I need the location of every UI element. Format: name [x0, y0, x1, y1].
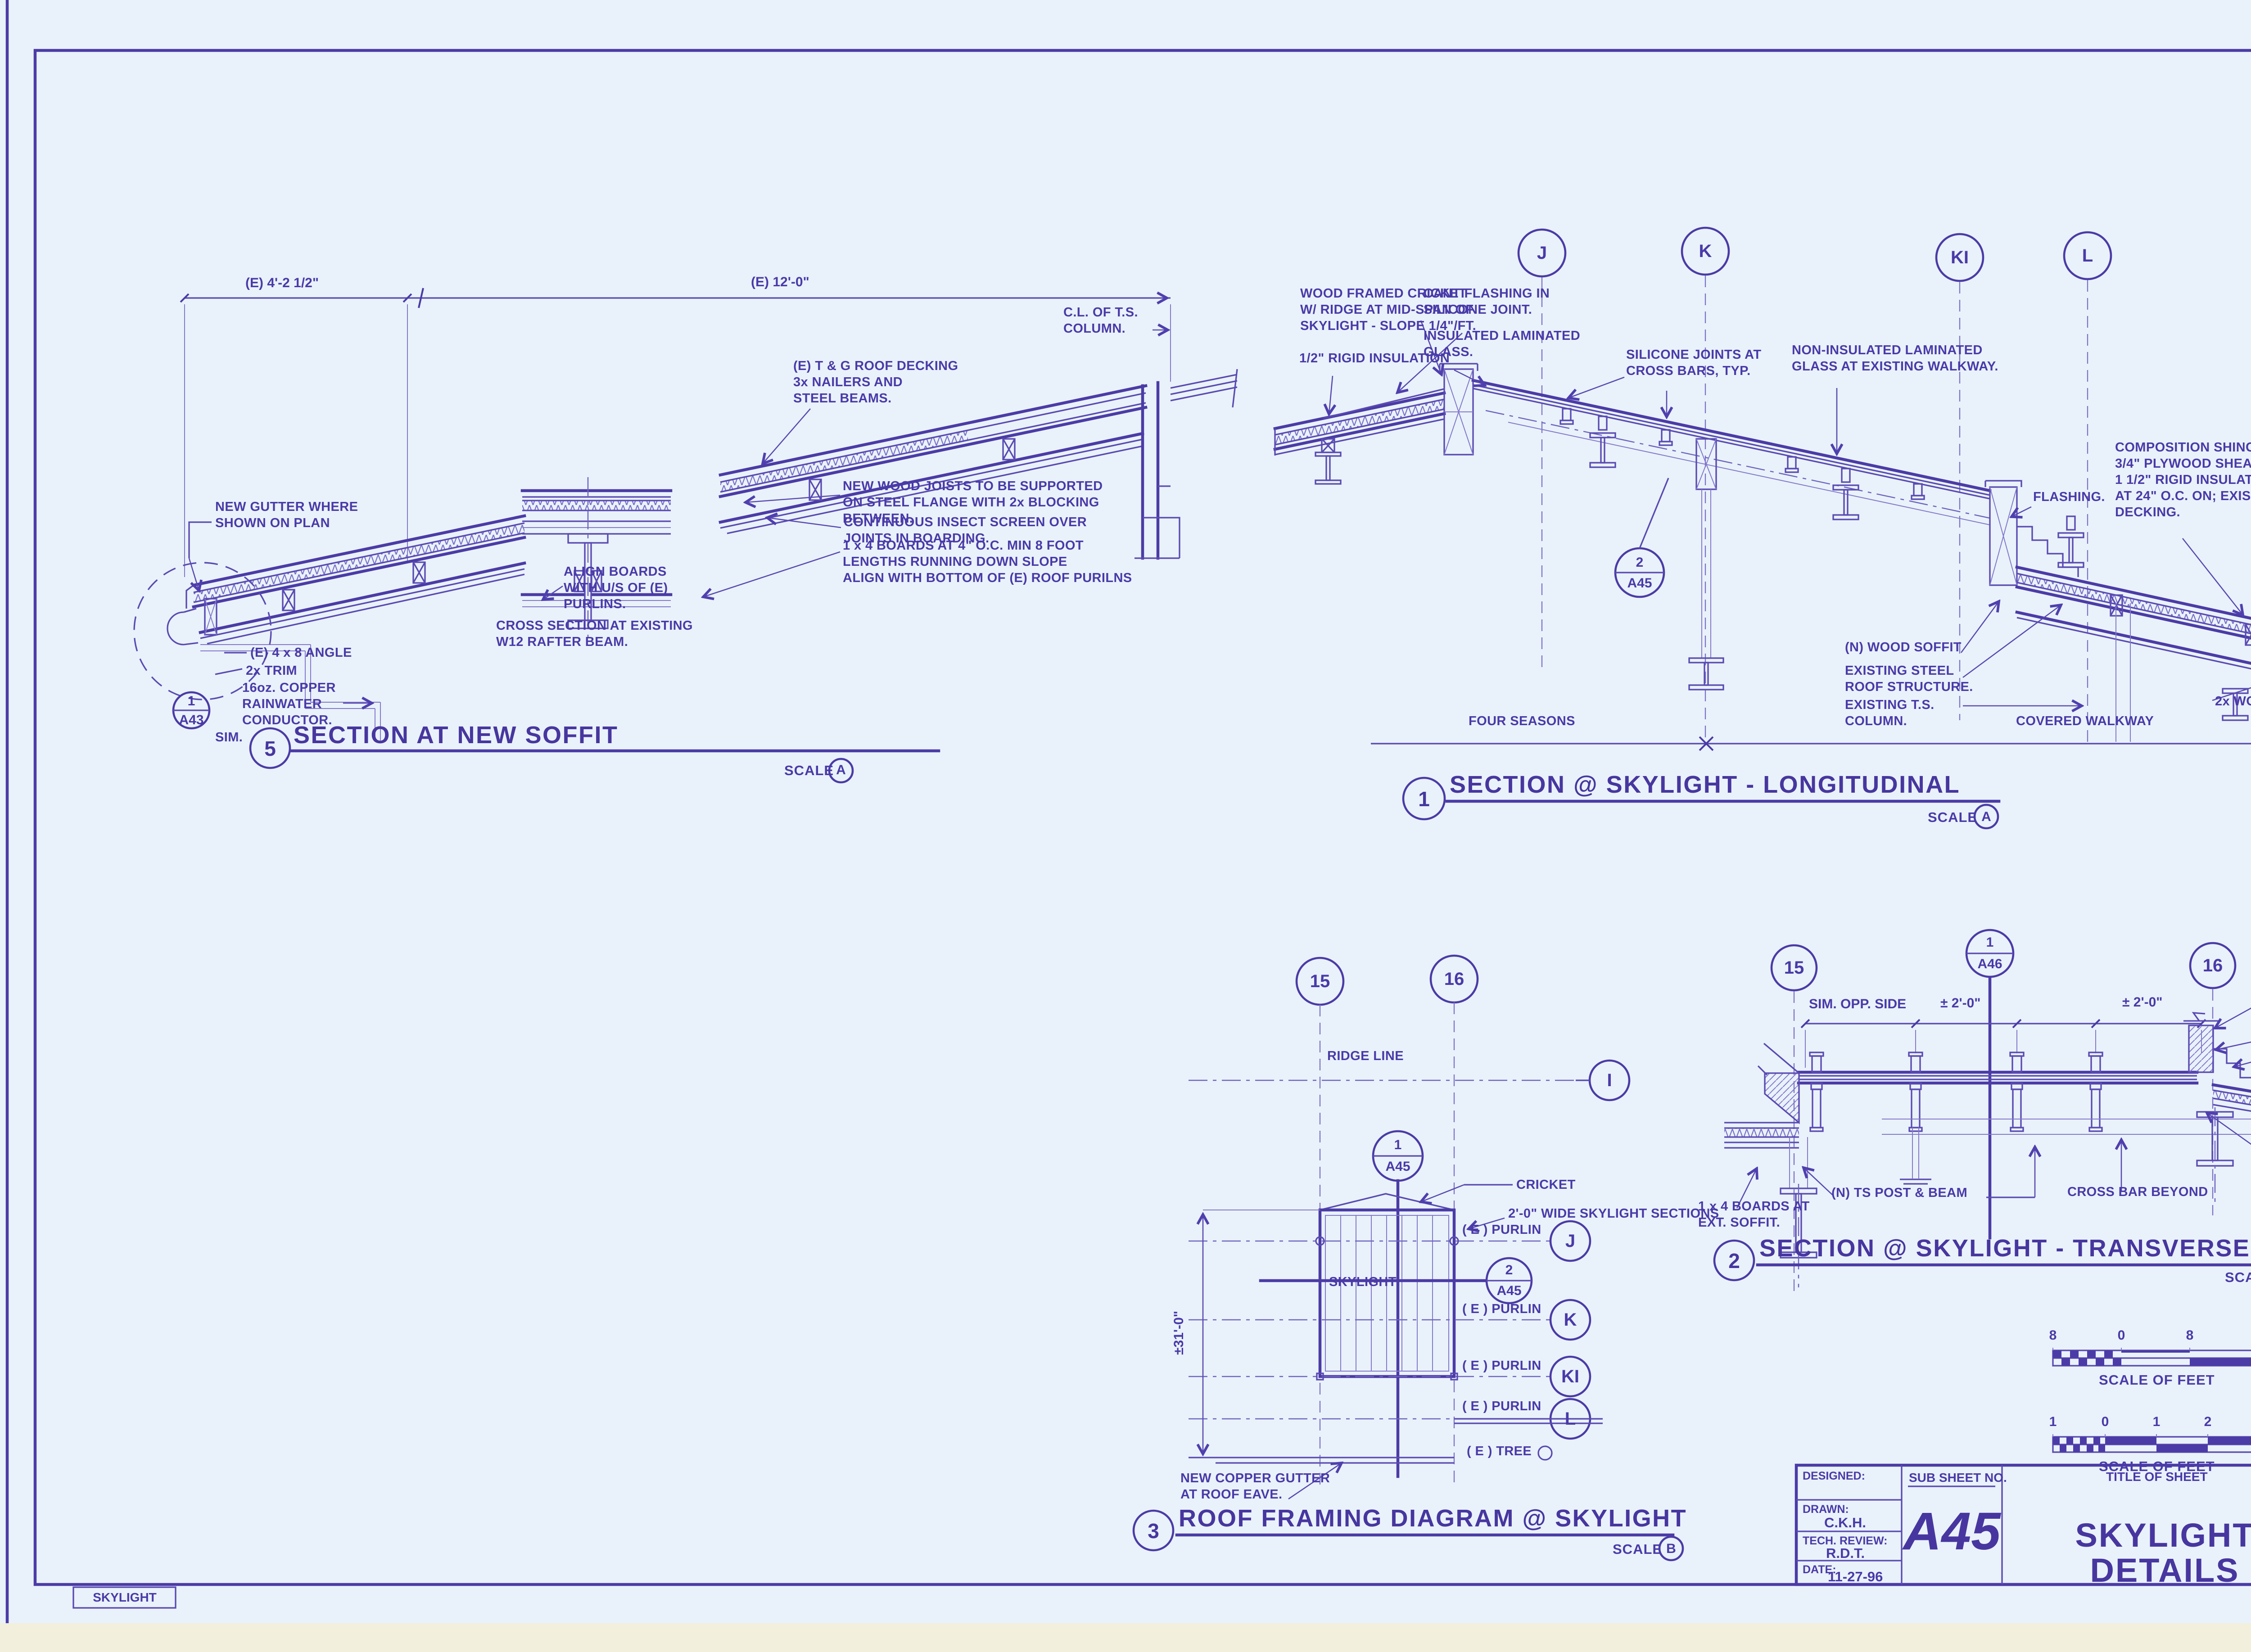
- detail-bubble-number: 1: [169, 694, 214, 709]
- note-noninsulated-glass: NON-INSULATED LAMINATED GLASS AT EXISTIN…: [1792, 342, 1998, 375]
- grid-bubble-16: 16: [1441, 970, 1468, 988]
- bar-caption: SCALE OF FEET: [2099, 1372, 2215, 1388]
- note-angle: (E) 4 x 8 ANGLE: [250, 645, 352, 661]
- bar-tick: 0: [2109, 1328, 2134, 1343]
- bar-tick: 8: [2040, 1328, 2066, 1343]
- tb-date-value: 11-27-96: [1828, 1569, 1883, 1584]
- label-purlin: ( E ) PURLIN: [1462, 1222, 1541, 1238]
- grid-bubble-k1: KI: [1557, 1368, 1584, 1386]
- grid-bubble-15: 15: [1781, 959, 1808, 977]
- note-insulated-glass: INSULATED LAMINATED GLASS.: [1424, 328, 1580, 360]
- tb-title-label: TITLE OF SHEET: [2106, 1470, 2208, 1484]
- note-trim-edge: 2x WOOD TRIM EDGE: [2215, 693, 2251, 709]
- grid-bubble-15: 15: [1306, 972, 1333, 990]
- detail-title: SECTION @ SKYLIGHT - TRANSVERSE: [1759, 1235, 2250, 1261]
- note-tg-decking: (E) T & G ROOF DECKING 3x NAILERS AND ST…: [793, 358, 958, 406]
- tb-drawn-label: DRAWN:: [1803, 1503, 1849, 1516]
- note-trim: 2x TRIM: [246, 663, 297, 679]
- zone-label-covered-walkway: COVERED WALKWAY: [2016, 713, 2154, 729]
- grid-bubble-j: J: [1528, 244, 1555, 262]
- tb-subsheet-label: SUB SHEET NO.: [1909, 1471, 2007, 1485]
- dim-label-vertical: ±31'-0": [1171, 1311, 1187, 1355]
- sheet-corner-tab: SKYLIGHT: [76, 1591, 174, 1604]
- detail-bubble-number: 2: [1617, 555, 1662, 570]
- note-flashing: FLASHING.: [2033, 489, 2105, 505]
- detail-bubble-sheet: A45: [1487, 1284, 1532, 1298]
- scale-word: SCALE: [1928, 809, 1977, 826]
- detail-bubble-sheet: A45: [1375, 1160, 1420, 1174]
- note-cl-column: C.L. OF T.S. COLUMN.: [1063, 304, 1138, 337]
- detail-bubble-number: 2: [1487, 1263, 1532, 1277]
- bar-tick: 1: [2040, 1414, 2066, 1430]
- tb-title-value: SKYLIGHT DETAILS: [2002, 1518, 2251, 1588]
- tb-drawn-value: C.K.H.: [1824, 1515, 1866, 1530]
- note-cross-bar: CROSS BAR BEYOND: [2067, 1184, 2208, 1200]
- note-cricket: CRICKET: [1516, 1177, 1576, 1193]
- label-tree: ( E ) TREE: [1467, 1443, 1532, 1459]
- detail-number: 3: [1141, 1521, 1166, 1541]
- bar-tick: 2: [2195, 1414, 2220, 1430]
- note-ts-column: EXISTING T.S. COLUMN.: [1845, 697, 1935, 729]
- detail-title: SECTION @ SKYLIGHT - LONGITUDINAL: [1450, 772, 1960, 798]
- grid-bubble-k1: KI: [1946, 248, 1973, 266]
- grid-bubble-k: K: [1557, 1311, 1584, 1329]
- scale-ref: A: [829, 763, 853, 777]
- scale-ref: B: [1659, 1542, 1683, 1556]
- grid-bubble-j: J: [1557, 1232, 1584, 1250]
- label-purlin: ( E ) PURLIN: [1462, 1301, 1541, 1317]
- tb-tech-value: R.D.T.: [1826, 1546, 1865, 1561]
- detail-bubble-number: 1: [1967, 935, 2012, 950]
- detail-number: 1: [1411, 789, 1437, 809]
- scale-word: SCALE: [784, 763, 834, 779]
- dim-label: (E) 4'-2 1/2": [245, 275, 319, 291]
- note-sim: SIM.: [215, 729, 243, 745]
- note-new-gutter: NEW GUTTER WHERE SHOWN ON PLAN: [215, 499, 358, 531]
- note-ridge-line: RIDGE LINE: [1327, 1048, 1404, 1064]
- note-ts-post-beam: (N) TS POST & BEAM: [1831, 1185, 1967, 1201]
- label-skylight: SKYLIGHT: [1329, 1274, 1397, 1290]
- note-1x4-boards: 1 x 4 BOARDS AT 4" O.C. MIN 8 FOOT LENGT…: [843, 537, 1132, 586]
- tb-subsheet-value: A45: [1902, 1504, 2002, 1558]
- dim-label: ± 2'-0": [2122, 995, 2163, 1010]
- grid-bubble-i: I: [1596, 1071, 1623, 1089]
- detail-title: ROOF FRAMING DIAGRAM @ SKYLIGHT: [1179, 1505, 1687, 1531]
- blueprint-sheet: .sh{stroke:#4b3ba6;stroke-width:6.5;fill…: [0, 0, 2251, 1652]
- detail-number: 5: [258, 738, 283, 759]
- bar-tick: 3: [2246, 1414, 2251, 1430]
- note-steel-structure: EXISTING STEEL ROOF STRUCTURE.: [1845, 663, 1973, 695]
- scale-ref: A: [1975, 810, 1998, 824]
- detail-bubble-number: 1: [1375, 1138, 1420, 1152]
- label-purlin: ( E ) PURLIN: [1462, 1358, 1541, 1374]
- note-skylight-sections: 2'-0" WIDE SKYLIGHT SECTIONS: [1508, 1205, 1719, 1222]
- dim-label: SIM. OPP. SIDE: [1809, 997, 1906, 1012]
- note-composition-shingles: COMPOSITION SHINGLES ON; 3/4" PLYWOOD SH…: [2115, 439, 2251, 520]
- bar-tick: 8: [2177, 1328, 2202, 1343]
- note-copper-conductor: 16oz. COPPER RAINWATER CONDUCTOR.: [242, 680, 336, 728]
- scale-word: SCALE: [1613, 1541, 1662, 1557]
- bar-tick: 0: [2093, 1414, 2118, 1430]
- detail-title: SECTION AT NEW SOFFIT: [294, 722, 618, 748]
- zone-label-four-seasons: FOUR SEASONS: [1469, 713, 1575, 729]
- drawing-linework: .sh{stroke:#4b3ba6;stroke-width:6.5;fill…: [0, 0, 2251, 1652]
- note-boards-soffit: 1 x 4 BOARDS AT EXT. SOFFIT.: [1698, 1198, 1810, 1231]
- note-silicone-joints: SILICONE JOINTS AT CROSS BARS, TYP.: [1626, 347, 1761, 379]
- dim-label: ± 2'-0": [1940, 996, 1981, 1011]
- bar-tick: 1: [2144, 1414, 2169, 1430]
- note-copper-gutter: NEW COPPER GUTTER AT ROOF EAVE.: [1180, 1470, 1330, 1503]
- scale-word: SCALE: [2225, 1269, 2251, 1286]
- grid-bubble-k: K: [1692, 242, 1719, 260]
- note-wood-soffit: (N) WOOD SOFFIT: [1845, 639, 1962, 655]
- tb-designed-label: DESIGNED:: [1803, 1469, 1865, 1483]
- note-cant-flashing: CANT FLASHING IN SILICONE JOINT.: [1424, 285, 1550, 318]
- detail-number: 2: [1722, 1250, 1747, 1271]
- grid-bubble-16: 16: [2199, 957, 2226, 975]
- scale-bar-b: [2053, 1348, 2251, 1366]
- detail-bubble-sheet: A43: [169, 713, 214, 727]
- dim-label: (E) 12'-0": [751, 275, 809, 290]
- scale-bar-a: [2053, 1434, 2251, 1452]
- bar-tick: 16: [2246, 1328, 2251, 1343]
- grid-bubble-l: L: [1557, 1410, 1584, 1428]
- detail-bubble-sheet: A45: [1617, 576, 1662, 591]
- note-align-boards: ALIGN BOARDS WITH U/S OF (E) PURLINS.: [564, 564, 668, 612]
- grid-bubble-l: L: [2074, 247, 2101, 265]
- note-cross-section: CROSS SECTION AT EXISTING W12 RAFTER BEA…: [496, 618, 693, 650]
- detail-bubble-sheet: A46: [1967, 957, 2012, 971]
- label-purlin: ( E ) PURLIN: [1462, 1398, 1541, 1414]
